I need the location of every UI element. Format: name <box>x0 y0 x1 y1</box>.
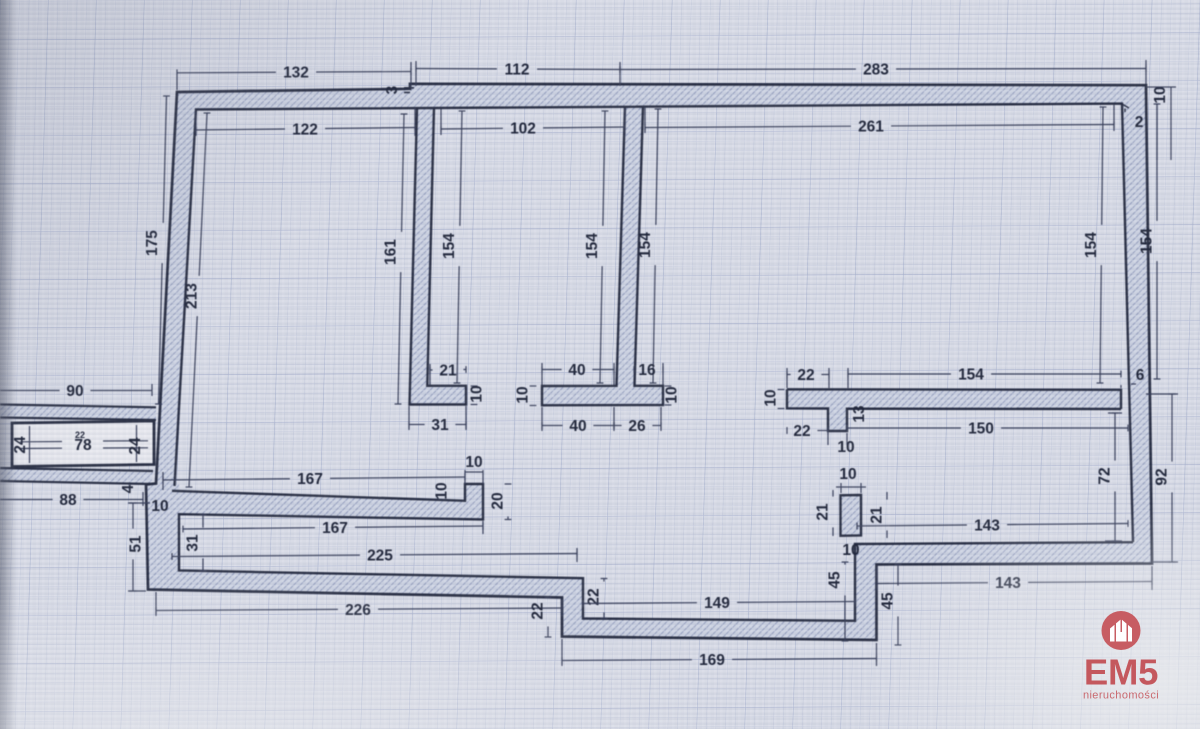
svg-text:51: 51 <box>128 535 145 553</box>
svg-text:3: 3 <box>384 85 401 94</box>
svg-text:175: 175 <box>144 230 161 256</box>
svg-text:31: 31 <box>431 417 449 434</box>
svg-text:10: 10 <box>763 389 780 406</box>
svg-text:226: 226 <box>345 602 371 619</box>
svg-text:45: 45 <box>827 571 844 589</box>
svg-text:112: 112 <box>504 61 529 78</box>
svg-text:225: 225 <box>367 547 393 564</box>
svg-text:154: 154 <box>1083 232 1100 258</box>
svg-text:10: 10 <box>842 542 859 559</box>
svg-text:6: 6 <box>1136 367 1145 384</box>
svg-text:132: 132 <box>283 65 309 82</box>
svg-text:167: 167 <box>322 520 348 537</box>
svg-text:22: 22 <box>793 423 810 440</box>
svg-text:20: 20 <box>490 492 507 509</box>
svg-text:92: 92 <box>1154 468 1171 485</box>
svg-text:16: 16 <box>638 362 656 379</box>
svg-text:154: 154 <box>441 233 458 259</box>
svg-text:4: 4 <box>120 484 137 493</box>
svg-text:161: 161 <box>383 239 400 265</box>
svg-text:40: 40 <box>568 362 585 379</box>
svg-text:154: 154 <box>958 367 984 384</box>
svg-text:154: 154 <box>1139 228 1156 254</box>
svg-text:13: 13 <box>851 405 868 423</box>
svg-text:88: 88 <box>59 492 77 509</box>
svg-text:10: 10 <box>837 439 854 456</box>
svg-text:150: 150 <box>968 421 994 438</box>
svg-text:213: 213 <box>184 283 201 309</box>
svg-text:143: 143 <box>974 517 1000 534</box>
svg-text:24: 24 <box>127 437 144 455</box>
svg-text:10: 10 <box>664 386 681 403</box>
svg-text:10: 10 <box>465 454 482 471</box>
svg-text:10: 10 <box>434 482 451 499</box>
svg-text:40: 40 <box>569 418 586 435</box>
svg-text:nieruchomości: nieruchomości <box>1083 690 1159 702</box>
svg-text:2: 2 <box>1135 114 1144 131</box>
svg-text:167: 167 <box>297 471 323 488</box>
svg-text:10: 10 <box>1152 86 1169 103</box>
svg-text:72: 72 <box>1097 467 1114 484</box>
svg-text:21: 21 <box>815 503 832 521</box>
svg-text:10: 10 <box>839 466 856 483</box>
svg-text:21: 21 <box>439 362 457 379</box>
svg-text:143: 143 <box>995 575 1021 592</box>
svg-text:102: 102 <box>510 121 536 138</box>
svg-text:154: 154 <box>637 232 654 258</box>
svg-text:24: 24 <box>12 436 29 454</box>
svg-text:31: 31 <box>185 534 202 552</box>
svg-text:122: 122 <box>292 121 318 138</box>
svg-text:21: 21 <box>869 506 886 524</box>
svg-text:149: 149 <box>704 595 730 612</box>
svg-text:22: 22 <box>797 367 814 384</box>
svg-text:EM5: EM5 <box>1084 652 1158 693</box>
svg-text:154: 154 <box>584 233 601 259</box>
svg-text:90: 90 <box>66 383 83 400</box>
svg-text:10: 10 <box>469 385 486 402</box>
svg-text:26: 26 <box>628 418 646 435</box>
svg-text:10: 10 <box>151 498 168 515</box>
svg-text:169: 169 <box>699 652 725 669</box>
svg-text:22: 22 <box>530 602 547 619</box>
svg-text:10: 10 <box>515 386 532 403</box>
svg-text:283: 283 <box>863 62 889 79</box>
svg-text:261: 261 <box>858 119 884 136</box>
svg-text:45: 45 <box>880 592 897 610</box>
svg-text:22: 22 <box>75 430 85 440</box>
